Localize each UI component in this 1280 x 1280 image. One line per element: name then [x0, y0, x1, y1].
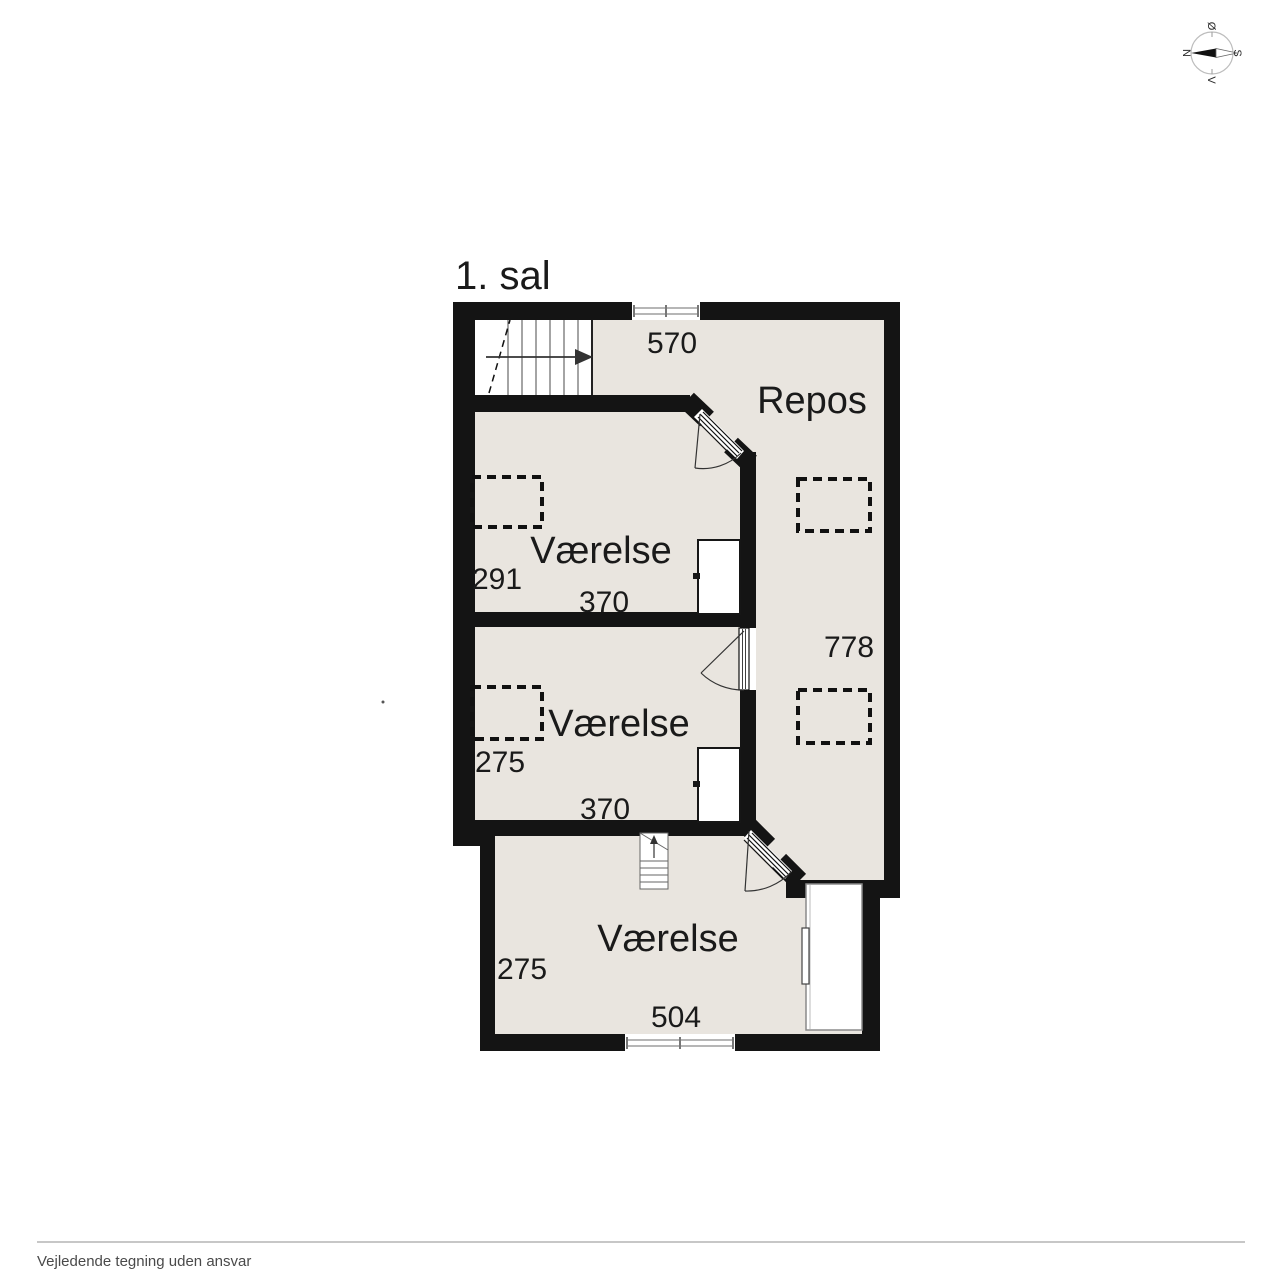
wall-right-lower: [862, 896, 880, 1051]
closet-1-body: [698, 540, 740, 614]
wall-stairs-bottom: [453, 395, 690, 412]
room-label-vaerelse-bottom: Værelse: [597, 918, 739, 960]
room-label-vaerelse-mid: Værelse: [548, 703, 690, 745]
closet-top-room: [693, 540, 740, 614]
compass-label-east: Ø: [1205, 22, 1217, 31]
compass-label-south: S: [1231, 49, 1243, 56]
staircase-main: [475, 320, 593, 395]
staircase-small: [640, 833, 668, 889]
floor-plan-page: 1. sal 570 Repos 778 Værelse 291 370 Vær…: [0, 0, 1280, 1280]
window-bay-bottom-right: [802, 884, 862, 1030]
window-bay-handle: [802, 928, 809, 984]
room-label-vaerelse-top: Værelse: [530, 530, 672, 572]
closet-2-body: [698, 748, 740, 822]
dim-repos-width: 570: [647, 327, 697, 360]
page-title: 1. sal: [455, 254, 551, 298]
door2-leaf-body: [739, 628, 749, 690]
wall-vertical-b: [740, 690, 756, 836]
window-bay-body: [806, 884, 862, 1030]
dim-vaerelse-top-depth: 291: [472, 563, 522, 596]
wall-vertical-a: [740, 452, 756, 628]
compass-label-west: V: [1205, 76, 1217, 84]
dim-vaerelse-bottom-depth: 275: [497, 953, 547, 986]
floor-plan-canvas: 1. sal 570 Repos 778 Værelse 291 370 Vær…: [0, 0, 1280, 1280]
dim-vaerelse-mid-depth: 275: [475, 746, 525, 779]
window-bottom: [625, 1034, 735, 1051]
closet-1-handle-tick: [693, 573, 700, 579]
room-label-repos: Repos: [757, 380, 867, 422]
window-top: [632, 302, 700, 320]
dim-vaerelse-mid-width: 370: [580, 793, 630, 826]
dim-repos-depth: 778: [824, 631, 874, 664]
stray-dot: [382, 701, 385, 704]
dim-vaerelse-bottom-width: 504: [651, 1001, 701, 1034]
wall-right-upper: [884, 302, 900, 898]
closet-2-handle-tick: [693, 781, 700, 787]
compass-label-north: N: [1180, 49, 1192, 57]
dim-vaerelse-top-width: 370: [579, 586, 629, 619]
footer-disclaimer: Vejledende tegning uden ansvar: [37, 1253, 251, 1270]
closet-mid-room: [693, 748, 740, 822]
wall-left-lower: [480, 833, 495, 1051]
